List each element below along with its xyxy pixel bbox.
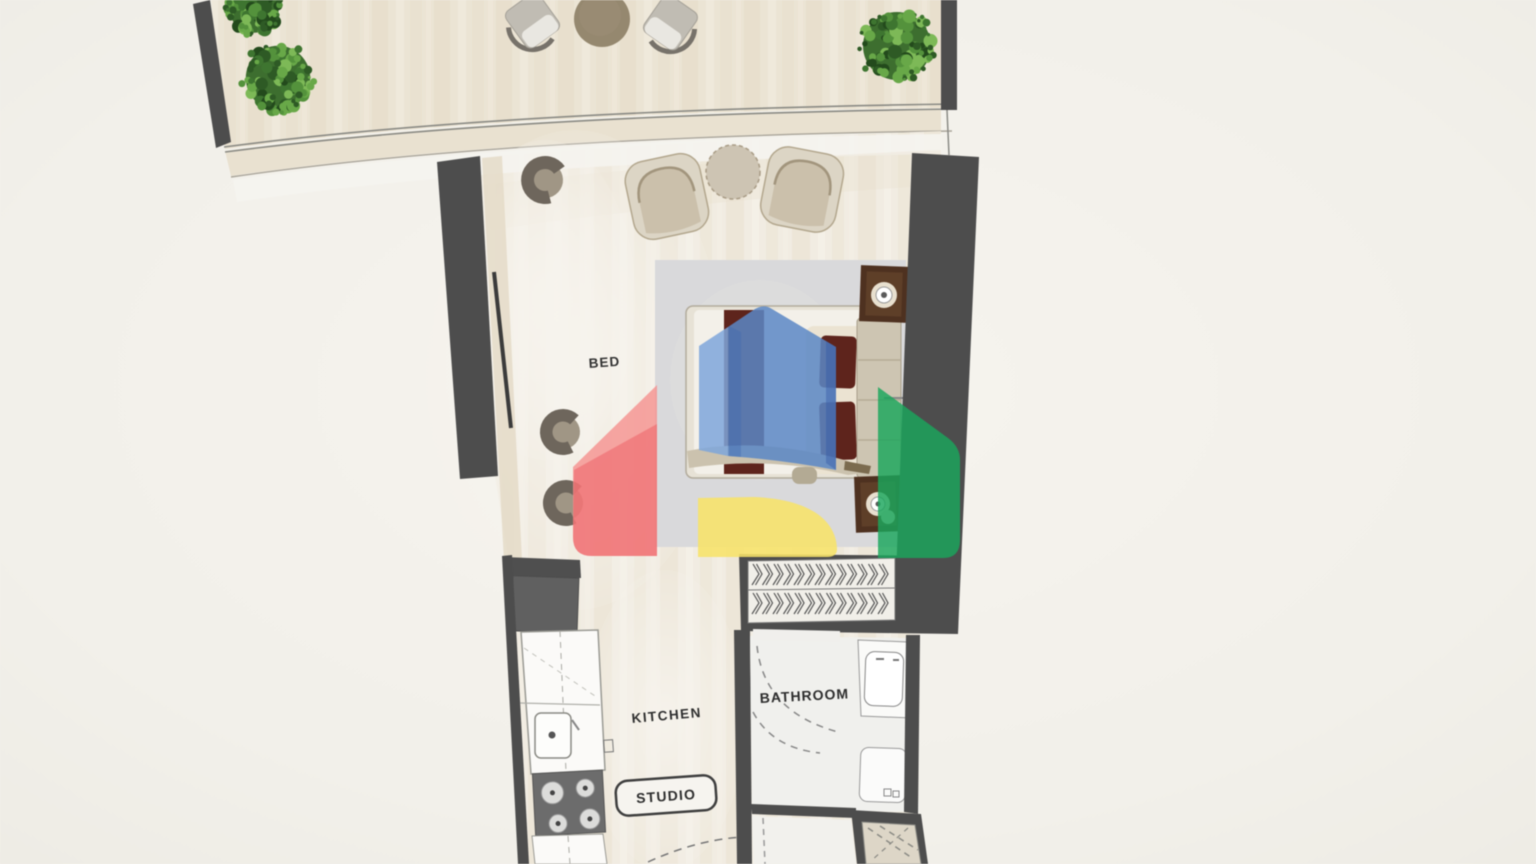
svg-text:BED: BED bbox=[588, 354, 620, 371]
